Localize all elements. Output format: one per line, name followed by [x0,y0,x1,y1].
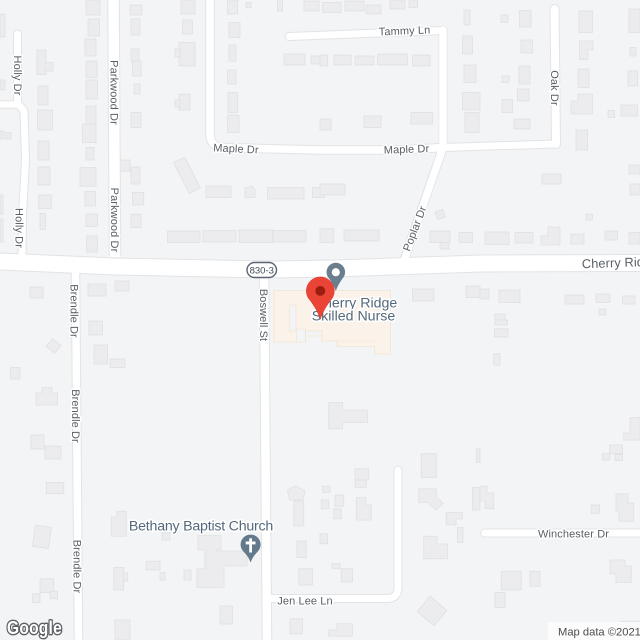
svg-text:Google: Google [7,617,62,638]
svg-text:Parkwood Dr: Parkwood Dr [108,188,120,253]
svg-text:Holly Dr: Holly Dr [13,208,25,248]
svg-text:Winchester Dr: Winchester Dr [538,528,609,540]
svg-text:Oak Dr: Oak Dr [548,70,560,106]
svg-text:Map data ©2021: Map data ©2021 [558,627,640,639]
svg-text:Parkwood Dr: Parkwood Dr [108,60,120,125]
svg-text:Brendle Dr: Brendle Dr [71,540,83,594]
svg-text:830-3: 830-3 [250,265,274,276]
svg-text:Jen Lee Ln: Jen Lee Ln [277,595,332,607]
svg-text:Skilled Nurse: Skilled Nurse [312,308,396,324]
svg-text:Maple Dr: Maple Dr [213,142,259,156]
svg-text:Bethany Baptist Church: Bethany Baptist Church [129,518,273,534]
svg-text:Holly Dr: Holly Dr [11,56,23,96]
svg-text:Brendle Dr: Brendle Dr [68,284,80,338]
svg-text:Cherry Rid: Cherry Rid [582,254,640,271]
svg-text:Brendle Dr: Brendle Dr [69,389,81,443]
svg-text:Maple Dr: Maple Dr [384,143,430,157]
svg-text:Tammy Ln: Tammy Ln [379,24,431,38]
svg-text:Boswell St: Boswell St [257,289,269,341]
